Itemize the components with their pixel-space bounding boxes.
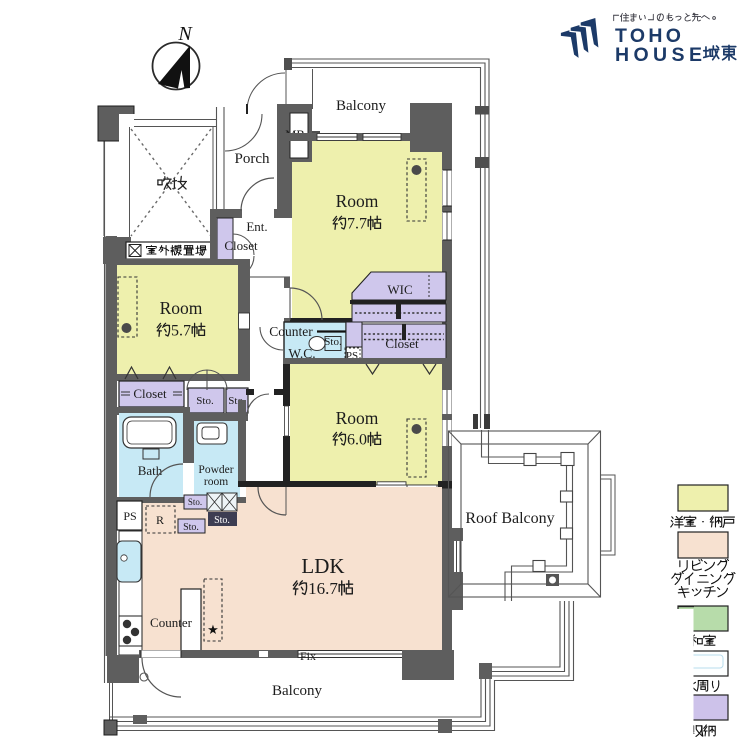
svg-text:Sto.: Sto.: [214, 515, 230, 526]
svg-text:Sto.: Sto.: [183, 522, 199, 533]
svg-text:★: ★: [207, 622, 219, 637]
svg-text:Balcony: Balcony: [336, 98, 386, 114]
svg-text:Room: Room: [160, 298, 203, 318]
svg-text:Sto.: Sto.: [188, 497, 202, 507]
svg-text:Fix: Fix: [300, 649, 316, 663]
svg-text:Bath: Bath: [138, 463, 163, 478]
svg-text:Closet: Closet: [133, 386, 167, 401]
svg-text:Balcony: Balcony: [272, 683, 322, 699]
svg-text:LDK: LDK: [301, 554, 344, 578]
svg-text:16.7: 16.7: [308, 579, 338, 598]
svg-text:Powder: Powder: [198, 464, 233, 476]
svg-text:Sto.: Sto.: [196, 395, 214, 407]
svg-text:Room: Room: [336, 191, 379, 211]
svg-text:Roof Balcony: Roof Balcony: [465, 510, 554, 527]
svg-text:N: N: [177, 23, 193, 45]
svg-text:Closet: Closet: [224, 238, 258, 253]
svg-text:PS: PS: [123, 509, 136, 523]
svg-text:Closet: Closet: [385, 336, 419, 351]
svg-text:7.7: 7.7: [347, 216, 367, 233]
svg-text:Room: Room: [336, 408, 379, 428]
svg-text:Counter: Counter: [150, 615, 193, 630]
svg-text:Porch: Porch: [235, 151, 270, 167]
svg-text:room: room: [204, 476, 228, 488]
svg-text:WIC: WIC: [387, 282, 412, 297]
svg-text:HOUSE: HOUSE: [615, 44, 706, 66]
svg-text:Sto.: Sto.: [324, 336, 342, 348]
svg-text:6.0: 6.0: [347, 432, 367, 449]
svg-text:R: R: [156, 513, 164, 527]
svg-text:Ent.: Ent.: [246, 219, 267, 234]
svg-text:Counter: Counter: [269, 324, 313, 339]
svg-text:5.7: 5.7: [171, 323, 191, 340]
